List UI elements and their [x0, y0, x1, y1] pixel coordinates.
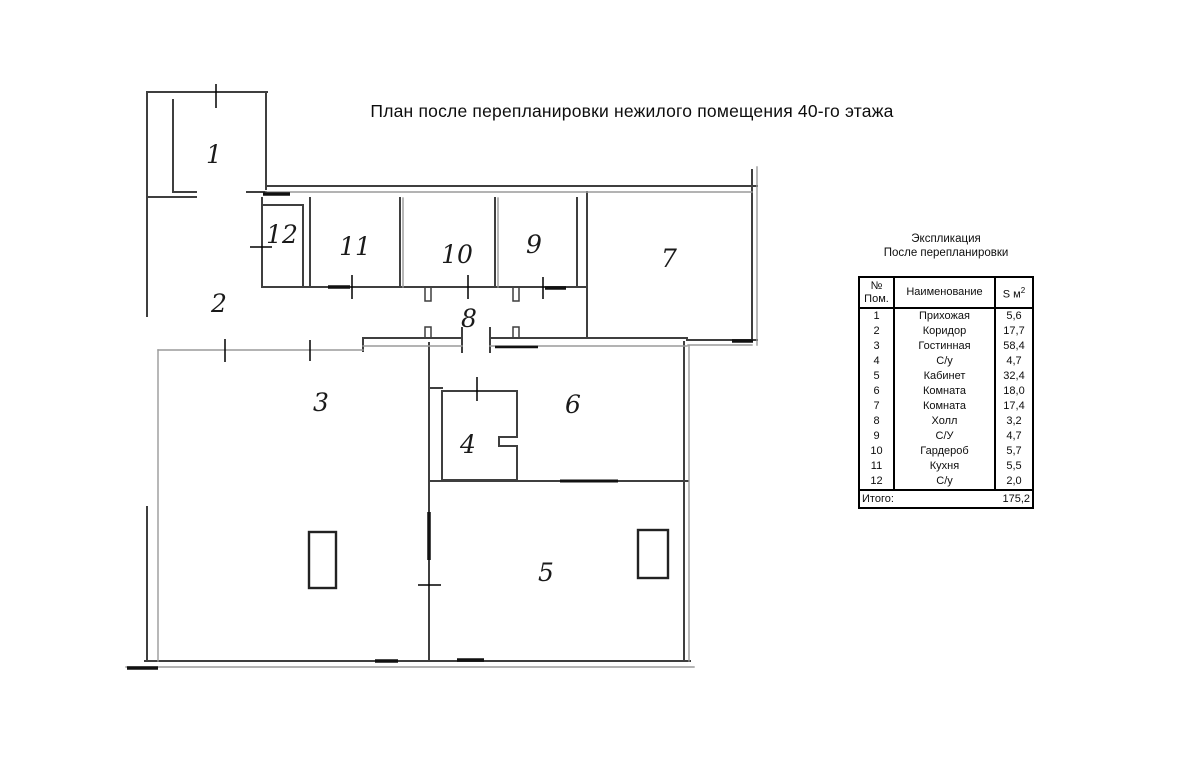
table-row: 11Кухня5,5	[859, 459, 1033, 474]
room-labels: 1 2 3 4 5 6 7 8 9 10 11 12	[206, 140, 677, 587]
legend-panel: Экспликация После перепланировки № Пом. …	[858, 232, 1034, 509]
cell-num: 1	[859, 308, 894, 324]
table-row: 3Гостинная58,4	[859, 339, 1033, 354]
cell-num: 5	[859, 369, 894, 384]
cell-name: С/у	[894, 474, 995, 490]
shaft-rect	[309, 532, 336, 588]
cell-name: Комната	[894, 384, 995, 399]
cell-num: 2	[859, 324, 894, 339]
cell-area: 17,4	[995, 399, 1033, 414]
col-header-num-line1: №	[860, 280, 893, 293]
total-value: 175,2	[995, 490, 1033, 508]
room-label-3: 3	[313, 388, 329, 417]
window-marks	[127, 194, 753, 668]
table-row: 10Гардероб5,7	[859, 444, 1033, 459]
cell-area: 18,0	[995, 384, 1033, 399]
cell-num: 4	[859, 354, 894, 369]
cell-area: 17,7	[995, 324, 1033, 339]
cell-num: 6	[859, 384, 894, 399]
room-label-12: 12	[266, 220, 298, 249]
total-label: Итого:	[859, 490, 995, 508]
cell-num: 7	[859, 399, 894, 414]
legend-caption-line2: После перепланировки	[858, 246, 1034, 260]
table-row: 8Холл3,2	[859, 414, 1033, 429]
room-label-11: 11	[339, 232, 371, 261]
cell-area: 4,7	[995, 429, 1033, 444]
shaft-rect	[638, 530, 668, 578]
cell-num: 11	[859, 459, 894, 474]
cell-name: Гостинная	[894, 339, 995, 354]
legend-header-row: № Пом. Наименование S м2	[859, 277, 1033, 308]
cell-area: 4,7	[995, 354, 1033, 369]
cell-area: 2,0	[995, 474, 1033, 490]
table-row: 2Коридор17,7	[859, 324, 1033, 339]
cell-name: С/у	[894, 354, 995, 369]
cell-area: 5,5	[995, 459, 1033, 474]
table-row: 5Кабинет32,4	[859, 369, 1033, 384]
cell-area: 58,4	[995, 339, 1033, 354]
cell-num: 10	[859, 444, 894, 459]
scanned-floor-plan-page: План после перепланировки нежилого помещ…	[0, 0, 1186, 759]
col-header-num-line2: Пом.	[860, 293, 893, 306]
cell-num: 12	[859, 474, 894, 490]
col-header-num: № Пом.	[859, 277, 894, 308]
cell-name: Прихожая	[894, 308, 995, 324]
area-unit: S м	[1003, 288, 1021, 300]
cell-num: 8	[859, 414, 894, 429]
table-row: 1Прихожая5,6	[859, 308, 1033, 324]
area-unit-sup: 2	[1021, 286, 1025, 295]
cell-name: Холл	[894, 414, 995, 429]
legend-caption-line1: Экспликация	[858, 232, 1034, 246]
room-label-9: 9	[526, 230, 542, 259]
table-row: 9С/У4,7	[859, 429, 1033, 444]
room-label-5: 5	[538, 558, 554, 587]
room-label-2: 2	[210, 289, 227, 318]
shafts	[309, 530, 668, 588]
table-row: 7Комната17,4	[859, 399, 1033, 414]
room-label-4: 4	[459, 430, 476, 459]
cell-area: 5,7	[995, 444, 1033, 459]
cell-num: 9	[859, 429, 894, 444]
room-label-1: 1	[206, 140, 222, 169]
cell-name: Комната	[894, 399, 995, 414]
legend-total-row: Итого: 175,2	[859, 490, 1033, 508]
legend-table: № Пом. Наименование S м2 1Прихожая5,6 2К…	[858, 276, 1034, 509]
room-label-8: 8	[461, 304, 477, 333]
col-header-area: S м2	[995, 277, 1033, 308]
table-row: 4С/у4,7	[859, 354, 1033, 369]
cell-name: Гардероб	[894, 444, 995, 459]
cell-name: Кабинет	[894, 369, 995, 384]
cell-name: Кухня	[894, 459, 995, 474]
cell-area: 5,6	[995, 308, 1033, 324]
cell-name: С/У	[894, 429, 995, 444]
cell-area: 32,4	[995, 369, 1033, 384]
room-label-10: 10	[441, 240, 473, 269]
room-label-7: 7	[661, 244, 677, 273]
room-label-6: 6	[565, 390, 581, 419]
table-row: 12С/у2,0	[859, 474, 1033, 490]
cell-num: 3	[859, 339, 894, 354]
table-row: 6Комната18,0	[859, 384, 1033, 399]
col-header-name: Наименование	[894, 277, 995, 308]
cell-area: 3,2	[995, 414, 1033, 429]
cell-name: Коридор	[894, 324, 995, 339]
